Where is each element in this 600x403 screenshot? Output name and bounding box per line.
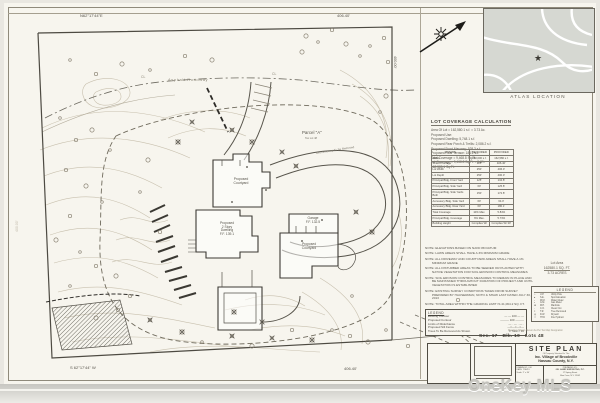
tree-symbol (139, 191, 142, 194)
title-block-empty-panel (428, 344, 471, 383)
bottom-wing-outline (218, 287, 262, 330)
lot-area-line3: 3.73 ACRES (531, 271, 583, 276)
centerline-left-label: CL (141, 76, 145, 80)
tree-removed-x-icon (250, 140, 255, 145)
legend-line-label: Trees To Be Removed As Shown (428, 330, 470, 334)
section-block-lots: Sec. 17 Blk. 10 Lots 48 (479, 334, 544, 339)
symbol-legend-title: LEGEND (534, 288, 596, 293)
bearing-bottom-label: S 62°17'44" W (70, 366, 96, 370)
tree-removed-x-icon (176, 140, 181, 145)
tree-removed-x-icon (180, 330, 185, 335)
tree-symbol (290, 328, 293, 331)
tree-symbol (183, 54, 186, 57)
tree-symbol (146, 158, 150, 162)
watermark: OneKey MLS (468, 378, 572, 396)
tree-removed-x-icon (190, 120, 195, 125)
dwelling-label: Proposed2 Story DwellingF.F. 139.1 (210, 222, 244, 237)
tree-symbol (385, 329, 388, 332)
tree-removed-x-icon (310, 338, 315, 343)
dimension-left-label: 400.00' (16, 221, 20, 232)
atlas-star-icon: ★ (534, 53, 542, 63)
tree-symbol (68, 214, 71, 217)
seal-box (474, 346, 512, 376)
note-item: NOTE: SOIL EROSION CONTROL MEASURES TO R… (425, 277, 533, 289)
hatched-area-bottom-left (52, 300, 132, 350)
tree-symbol (210, 58, 214, 62)
table-row: Building HeightComplies W/Complies W/ 30… (432, 221, 514, 227)
tree-symbol (384, 94, 388, 98)
note-item: NOTE: LAWN AREAS SHALL HAVE A 3% MINIMUM… (425, 252, 533, 256)
scanned-site-plan-sheet: N62°17'44"E 406.40' 400.00' 400.00' S 62… (0, 0, 600, 403)
tree-symbol (317, 41, 320, 44)
tax-map-note: Premises Shown Hereon As Per Tax Map Des… (508, 330, 563, 332)
tree-symbol (109, 149, 112, 152)
tax-lot-label: Tax Lot 48 (305, 138, 317, 141)
dimension-top-label: 406.40' (337, 14, 350, 18)
lot-coverage-title: LOT COVERAGE CALCULATION (431, 119, 511, 126)
table-cell: Complies W/ 30' (489, 221, 513, 227)
tree-symbol (304, 34, 308, 38)
tree-removed-x-icon (280, 150, 285, 155)
tree-symbol (406, 344, 409, 347)
symbol-legend-box: LEGEND ○U.P.Utility Pole●S.E.Spot Elevat… (531, 286, 599, 322)
note-item: NOTE: TOTAL AREA WITHIN THE GRADING LIMI… (425, 303, 533, 307)
centerline-right-label: CL (272, 73, 276, 77)
tree-symbol (149, 69, 152, 72)
county-line: Nassau County, N.Y. (516, 359, 596, 364)
tree-symbol (300, 50, 304, 54)
tree-symbol (94, 72, 97, 75)
table-row: Principal Bldg. Side Yards Both150'172.8… (432, 190, 514, 199)
silt-fence (46, 294, 140, 302)
legend-abbrev: HYD (540, 317, 551, 320)
dimension-bottom-label: 406.40' (344, 367, 357, 371)
tree-symbol (94, 264, 97, 267)
tree-symbol (359, 55, 362, 58)
tree-symbol (114, 274, 118, 278)
entrance-diagonal (207, 88, 228, 132)
courtyard-upper-label: ProposedCourtyard (222, 178, 260, 185)
note-item: NOTE: ELEVATIONS BASED ON NAVD 88 DATUM (425, 247, 533, 251)
courtyard-lower-label: ProposedCourtyard (292, 243, 326, 250)
courtyard-lower-outline (280, 233, 338, 278)
tree-symbol (158, 230, 161, 233)
legend-description: Fire Hydrant (551, 317, 596, 320)
table-cell: Complies W/ (470, 221, 490, 227)
building-outline (196, 154, 338, 330)
tree-symbol (59, 117, 62, 120)
table-cell: 172.8' (489, 190, 513, 199)
tree-symbol (351, 295, 354, 298)
note-item: NOTE: EXISTING SURVEY CONDITIONS TAKEN F… (425, 290, 533, 302)
tree-symbol (79, 251, 82, 254)
tree-removed-x-icon (270, 336, 275, 341)
tree-symbol (90, 128, 94, 132)
road-edge (42, 95, 175, 132)
erosion-hatch-band (150, 205, 196, 298)
tree-symbol (120, 62, 124, 66)
notes-block: NOTE: ELEVATIONS BASED ON NAVD 88 DATUMN… (425, 247, 533, 308)
tree-symbol (101, 201, 104, 204)
bearing-top-label: N62°17'44"E (80, 14, 103, 18)
atlas-location-map: ★ (483, 8, 595, 93)
tree-symbol (69, 59, 72, 62)
tree-symbol (382, 36, 385, 39)
tree-symbol (348, 334, 351, 337)
tree-symbol (69, 285, 72, 288)
tree-symbol (369, 45, 372, 48)
tree-symbol (331, 329, 334, 332)
table-cell: 150' (470, 190, 490, 199)
tree-symbol (386, 60, 389, 63)
tree-symbol (366, 340, 370, 344)
lot-area-block: Lot Area 162580.1 SQ. FT. 3.73 ACRES (531, 261, 583, 276)
road-label: Asphalt Roadway (168, 78, 208, 82)
atlas-location-label: ATLAS LOCATION (483, 94, 593, 99)
parcel-label: Parcel "A" (302, 131, 322, 136)
tree-symbol (344, 42, 348, 46)
dimension-right-label: 400.00' (393, 56, 397, 68)
atlas-roads: ★ (484, 9, 592, 90)
tree-symbol (54, 238, 58, 242)
legend-symbol-row: ☆HYDFire Hydrant (534, 317, 596, 320)
note-item: NOTE: ALL DRIVEWAY AND COURTYARD AREAS S… (425, 258, 533, 266)
table-cell: Building Height (432, 221, 470, 227)
north-arrow-icon (420, 21, 466, 52)
note-item: NOTE: ALL DISTURBED AREAS TO BE SEEDED O… (425, 267, 533, 275)
tree-symbol (330, 28, 333, 31)
zoning-table: ZONINGREQUIREDPROVIDED AREA160,000 s.f.1… (431, 149, 514, 227)
tree-symbol (84, 184, 88, 188)
garage-label: GarageF.F. 132.5 (298, 217, 328, 224)
sheet-title: SITE PLAN (516, 346, 596, 353)
table-cell: Principal Bldg. Side Yards Both (432, 190, 470, 199)
